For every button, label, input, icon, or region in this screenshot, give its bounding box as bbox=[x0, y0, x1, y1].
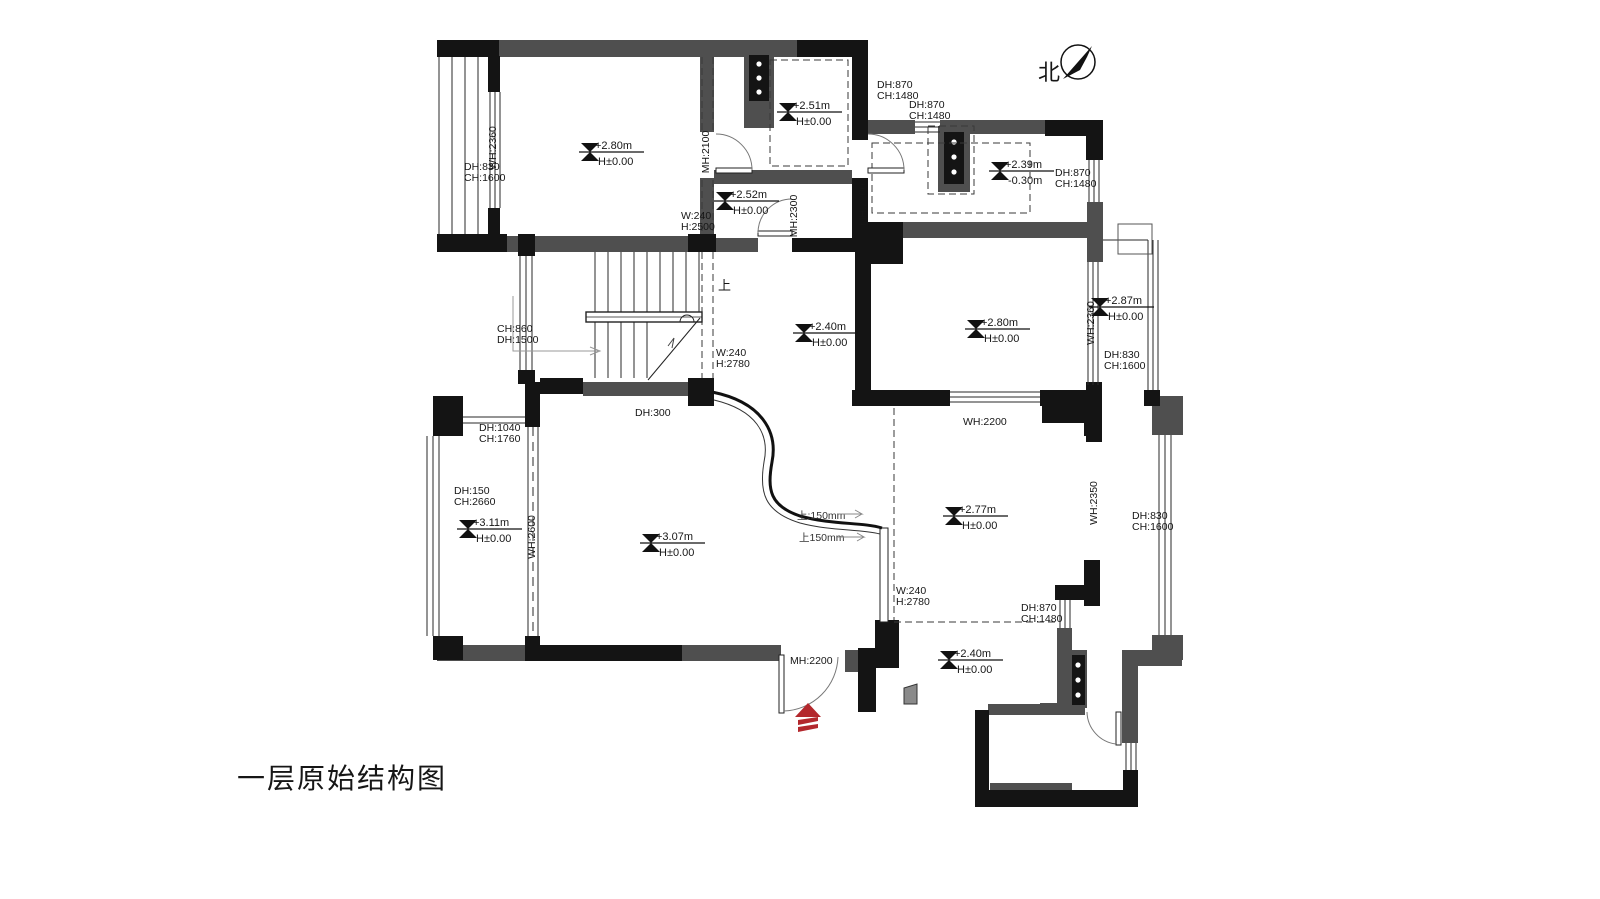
opening-label: CH:2660 bbox=[454, 496, 496, 508]
elevation-value: +2.52m bbox=[730, 189, 767, 201]
opening-label: MH:2300 bbox=[788, 195, 800, 238]
staircase: 上 bbox=[513, 252, 731, 380]
entry-arrow-icon bbox=[795, 703, 821, 732]
elevation-marker: +2.77m H±0.00 bbox=[943, 504, 1008, 532]
elevation-marker: +3.07m H±0.00 bbox=[640, 531, 705, 559]
elevation-value: +2.80m bbox=[981, 317, 1018, 329]
black-walls bbox=[433, 40, 1160, 807]
elevation-value: +3.07m bbox=[656, 531, 693, 543]
elevation-value: +2.80m bbox=[595, 140, 632, 152]
door-kitchen bbox=[868, 134, 904, 173]
elevation-marker: +2.40m H±0.00 bbox=[938, 648, 1003, 676]
opening-label: H:2500 bbox=[681, 221, 715, 233]
opening-label: MH:2200 bbox=[790, 655, 833, 667]
elevation-value: +2.40m bbox=[809, 321, 846, 333]
elevation-base: H±0.00 bbox=[598, 156, 633, 168]
opening-label: WH:2200 bbox=[963, 416, 1007, 428]
door-bathroom-top bbox=[716, 134, 752, 173]
opening-label: WH:2360 bbox=[1085, 301, 1097, 345]
vent-window bbox=[904, 684, 917, 704]
flue-icon bbox=[749, 55, 769, 101]
elevation-base: H±0.00 bbox=[962, 520, 997, 532]
opening-label: CH:1480 bbox=[909, 110, 951, 122]
floor-plan-page: 上 上:150mm 上150mm +2.80m H±0.00 +2.51m H±… bbox=[0, 0, 1600, 899]
opening-label: MH:2100 bbox=[700, 131, 712, 174]
opening-labels: DH:830 CH:1600 WH:2360 W:240 H:2500 MH:2… bbox=[454, 79, 1174, 667]
opening-label: MH:2200 bbox=[857, 184, 869, 227]
elevation-marker: +2.80m H±0.00 bbox=[579, 140, 644, 168]
floor-plan-canvas: 上 上:150mm 上150mm +2.80m H±0.00 +2.51m H±… bbox=[0, 0, 1600, 899]
thin-wall bbox=[880, 528, 888, 622]
elevation-base: H±0.00 bbox=[476, 533, 511, 545]
elevation-marker: +2.80m H±0.00 bbox=[965, 317, 1030, 345]
elevation-base: H±0.00 bbox=[1108, 311, 1143, 323]
opening-label: H:2780 bbox=[896, 596, 930, 608]
elevation-base: -0.30m bbox=[1008, 175, 1042, 187]
elevation-base: H±0.00 bbox=[957, 664, 992, 676]
elevation-base: H±0.00 bbox=[984, 333, 1019, 345]
elevation-base: H±0.00 bbox=[659, 547, 694, 559]
opening-label: DH:300 bbox=[635, 407, 671, 419]
elevation-value: +2.87m bbox=[1105, 295, 1142, 307]
door-rear-bathroom bbox=[1087, 712, 1121, 745]
stair-break-line bbox=[648, 318, 700, 380]
north-label: 北 bbox=[1038, 60, 1060, 85]
opening-label: DH:1500 bbox=[497, 334, 539, 346]
elevation-value: +2.39m bbox=[1005, 159, 1042, 171]
elevation-marker: +2.51m H±0.00 bbox=[777, 100, 842, 128]
north-arrow: 北 bbox=[1038, 45, 1095, 85]
opening-label: WH:2360 bbox=[487, 126, 499, 170]
opening-label: CH:1760 bbox=[479, 433, 521, 445]
opening-label: CH:1600 bbox=[1104, 360, 1146, 372]
ac-platform bbox=[1118, 224, 1152, 254]
elevation-value: +2.77m bbox=[959, 504, 996, 516]
opening-label: WH:2350 bbox=[1088, 481, 1100, 525]
elevation-value: +2.40m bbox=[954, 648, 991, 660]
elevation-marker: +2.39m -0.30m bbox=[989, 159, 1054, 187]
opening-label: WH:2600 bbox=[526, 515, 538, 559]
step-note-1: 上:150mm bbox=[797, 510, 846, 522]
elevation-value: +3.11m bbox=[473, 517, 509, 529]
opening-label: CH:1480 bbox=[1055, 178, 1097, 190]
elevation-value: +2.51m bbox=[793, 100, 830, 112]
page-title: 一层原始结构图 bbox=[237, 763, 447, 794]
elevation-base: H±0.00 bbox=[733, 205, 768, 217]
step-note-2: 上150mm bbox=[799, 532, 845, 544]
elevation-marker: +2.52m H±0.00 bbox=[714, 189, 779, 217]
compass-needle-icon bbox=[1063, 46, 1092, 79]
flue-icon bbox=[1072, 655, 1085, 705]
opening-label: CH:1600 bbox=[1132, 521, 1174, 533]
opening-label: CH:1600 bbox=[464, 172, 506, 184]
opening-label: H:2780 bbox=[716, 358, 750, 370]
elevation-base: H±0.00 bbox=[812, 337, 847, 349]
step-notes: 上:150mm 上150mm bbox=[797, 510, 864, 544]
elevation-marker: +3.11m H±0.00 bbox=[457, 517, 522, 545]
elevation-marker: +2.87m H±0.00 bbox=[1089, 295, 1154, 323]
stairs-up-label: 上 bbox=[718, 278, 731, 293]
opening-label: CH:1480 bbox=[1021, 613, 1063, 625]
flue-icon bbox=[944, 132, 964, 184]
elevation-marker: +2.40m H±0.00 bbox=[793, 321, 858, 349]
elevation-base: H±0.00 bbox=[796, 116, 831, 128]
